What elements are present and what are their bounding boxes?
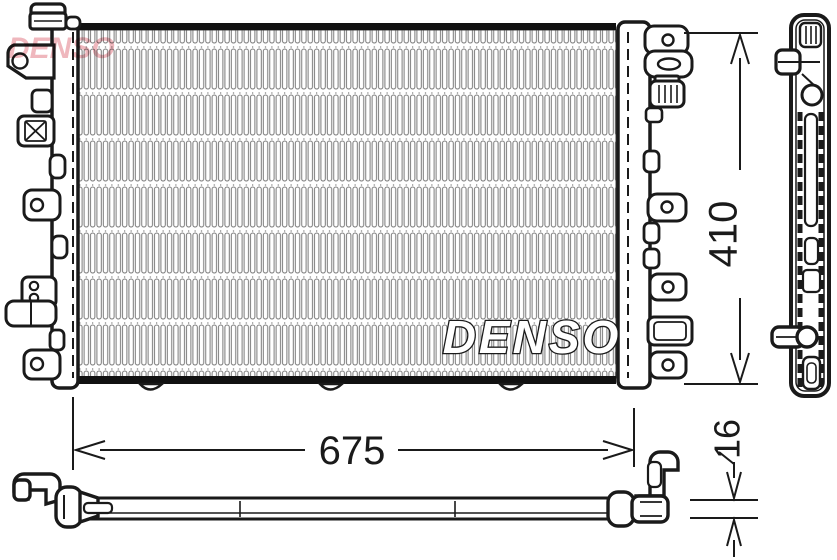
bottom-right-fitting bbox=[608, 452, 678, 526]
tank-tab-left-3 bbox=[50, 330, 64, 350]
side-view bbox=[772, 15, 829, 396]
tank-tab-right-3 bbox=[644, 249, 659, 268]
tank-tab-right-2 bbox=[644, 223, 659, 243]
strip-body bbox=[78, 498, 636, 519]
drain-knob-right bbox=[650, 76, 684, 107]
mount-bracket-hole-right-3 bbox=[650, 274, 686, 300]
depth-dimension-label: 16 bbox=[707, 419, 748, 459]
mount-bracket-oval-right bbox=[645, 51, 692, 77]
bottom-mount-bump bbox=[140, 384, 162, 390]
tank-tab-left-1 bbox=[50, 155, 65, 178]
mount-bracket-hole-left-2 bbox=[24, 190, 60, 220]
dimension-depth-16: 16 bbox=[690, 419, 758, 557]
mount-stub-right bbox=[648, 317, 692, 345]
height-dimension-label: 410 bbox=[702, 201, 746, 268]
side-bottom-slot bbox=[803, 357, 820, 389]
tank-stub-right-1 bbox=[646, 108, 662, 122]
mount-bracket-two-holes-left bbox=[6, 277, 56, 326]
core-top-header-bar bbox=[78, 23, 616, 30]
mount-bracket-hole-right-2 bbox=[648, 194, 686, 221]
bottom-mount-bump bbox=[320, 384, 342, 390]
right-tank bbox=[618, 22, 650, 388]
mount-bracket-hole-right-4 bbox=[650, 352, 686, 378]
drawing-canvas: DENSO DENSO bbox=[0, 0, 837, 560]
side-slot-mid-2 bbox=[803, 270, 820, 292]
radiator-technical-drawing: DENSO DENSO bbox=[0, 0, 837, 560]
filler-neck-cap bbox=[30, 4, 66, 29]
side-lower-pipe bbox=[772, 327, 817, 347]
tank-tab-right-1 bbox=[644, 151, 659, 172]
dimension-height-410: 410 bbox=[684, 33, 758, 384]
tank-tab-left-2 bbox=[52, 236, 67, 258]
denso-logo-watermark: DENSO bbox=[8, 32, 115, 65]
side-slot-mid bbox=[805, 238, 818, 264]
tank-top-bump bbox=[66, 17, 80, 29]
mount-bracket-hole-left-3 bbox=[24, 350, 60, 379]
side-center-channel bbox=[805, 114, 817, 226]
dimension-width-675: 675 bbox=[73, 397, 634, 473]
side-mount-hole bbox=[802, 85, 822, 105]
core-brand-watermark: DENSO bbox=[443, 311, 622, 363]
side-top-cap bbox=[800, 23, 821, 47]
tank-edge-step-left bbox=[32, 90, 52, 112]
width-dimension-label: 675 bbox=[319, 429, 386, 473]
bottom-mount-bump bbox=[500, 384, 522, 390]
sensor-plug-left bbox=[18, 116, 54, 146]
